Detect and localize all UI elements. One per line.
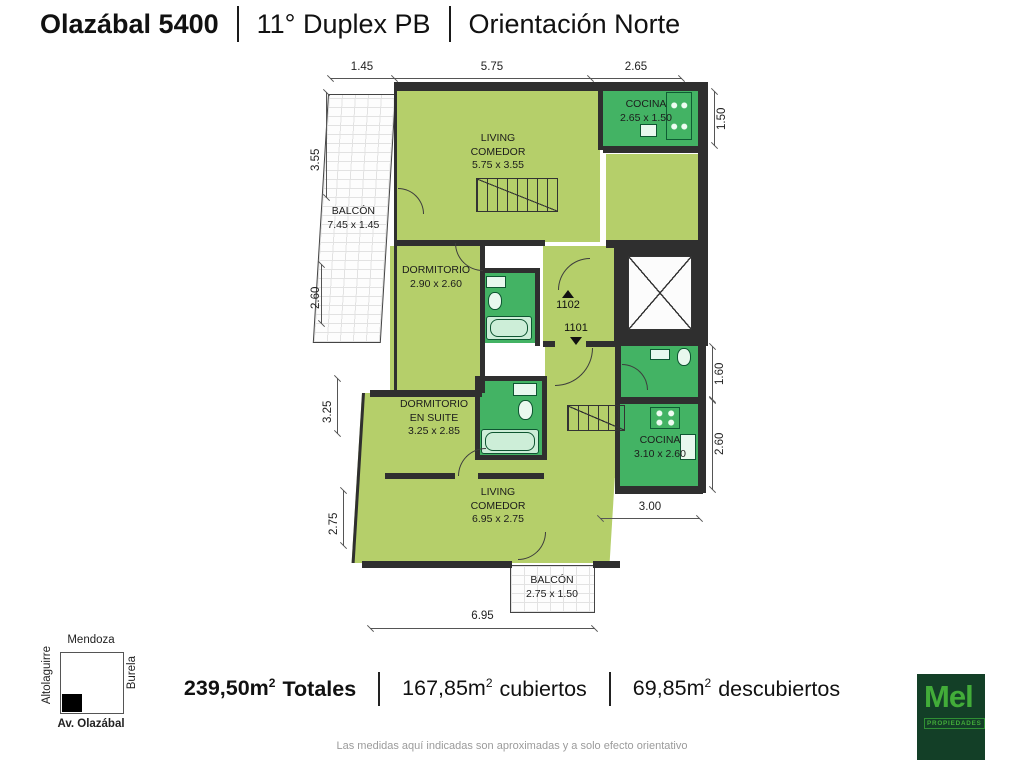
wall (593, 561, 620, 568)
page-title: Olazábal 5400 11° Duplex PB Orientación … (40, 6, 680, 42)
wall (478, 473, 544, 479)
room-name: BALCÓN (321, 205, 385, 219)
room-label-living-bottom: LIVING COMEDOR 6.95 x 2.75 (428, 486, 568, 527)
room-name: LIVING COMEDOR (428, 486, 568, 513)
stairs-upper (476, 178, 558, 212)
room-name: LIVING COMEDOR (428, 132, 568, 159)
wall (370, 390, 482, 397)
total-area-label: Totales (282, 677, 356, 701)
wall (535, 268, 540, 346)
wall (543, 341, 555, 347)
wall-window (394, 88, 397, 393)
dim-bottom: 6.95 (370, 610, 595, 622)
dim-left-1: 3.55 (310, 130, 322, 190)
room-size: 6.95 x 2.75 (428, 513, 568, 527)
dimension-line (370, 628, 595, 629)
total-area-value: 239,50m (184, 677, 269, 701)
title-separator-icon (237, 6, 239, 42)
dim-top-1: 1.45 (330, 61, 394, 73)
wall (698, 343, 706, 493)
elevator-icon (628, 256, 692, 330)
dimension-line (326, 92, 327, 198)
sink-icon (640, 124, 657, 137)
wall (385, 473, 455, 479)
map-street-south: Av. Olazábal (40, 718, 142, 730)
summary-separator-icon (609, 672, 611, 706)
dim-right-2: 1.60 (714, 350, 726, 398)
dimension-line (343, 490, 344, 546)
room-size: 3.25 x 2.85 (388, 425, 480, 439)
room-label-cocina-top: COCINA 2.65 x 1.50 (600, 98, 692, 125)
room-size: 5.75 x 3.55 (428, 159, 568, 173)
balcony-left-label: BALCÓN 7.45 x 1.45 (321, 205, 385, 232)
logo-brand: Mel (924, 681, 985, 712)
wall (475, 376, 547, 381)
stairs-lower (567, 405, 625, 431)
covered-area: 167,85m2cubiertos (402, 676, 587, 701)
dimension-line (600, 518, 700, 519)
room-label-cocina-bottom: COCINA 3.10 x 2.60 (620, 434, 700, 461)
total-area: 239,50m2Totales (184, 676, 356, 701)
map-street-west: Altolaguirre (41, 646, 53, 704)
map-street-north: Mendoza (60, 634, 122, 646)
map-street-east: Burela (126, 656, 138, 689)
dimension-line (712, 400, 713, 490)
room-palier-upper (606, 154, 698, 242)
uncovered-area-value: 69,85m (633, 677, 705, 701)
wall (606, 240, 708, 248)
title-unit: 11° Duplex PB (257, 9, 431, 40)
logo-tagline: PROPIEDADES (924, 718, 985, 729)
dim-top-3: 2.65 (590, 61, 682, 73)
room-name: COCINA (600, 98, 692, 112)
room-name: DORMITORIO EN SUITE (388, 398, 480, 425)
dimension-line (712, 346, 713, 400)
sink-icon (513, 383, 537, 396)
door-arrow-down-icon (570, 337, 582, 345)
unit-door-upper: 1102 (550, 299, 586, 311)
room-size: 2.75 x 1.50 (511, 588, 593, 602)
bathtub-icon (481, 429, 539, 454)
wall (615, 486, 703, 494)
room-size: 2.90 x 2.60 (392, 278, 480, 292)
balcony-bottom-label: BALCÓN 2.75 x 1.50 (511, 574, 593, 601)
sup: 2 (486, 676, 493, 690)
stove-icon (650, 407, 680, 429)
sup: 2 (269, 676, 276, 690)
dim-right-3: 2.60 (714, 418, 726, 470)
wall (480, 268, 540, 273)
toilet-icon (677, 348, 691, 366)
room-name: COCINA (620, 434, 700, 448)
dim-right-1: 1.50 (716, 96, 728, 142)
map-building-marker (62, 694, 82, 712)
wall (542, 376, 547, 460)
room-name: DORMITORIO (392, 264, 480, 278)
balcony-bottom: BALCÓN 2.75 x 1.50 (510, 565, 595, 613)
disclaimer-text: Las medidas aquí indicadas son aproximad… (0, 740, 1024, 752)
map-block-outline (60, 652, 124, 714)
toilet-icon (488, 292, 502, 310)
room-size: 2.65 x 1.50 (600, 112, 692, 126)
wall (362, 561, 512, 568)
wall (603, 146, 698, 153)
room-label-living-top: LIVING COMEDOR 5.75 x 3.55 (428, 132, 568, 173)
title-separator-icon (449, 6, 451, 42)
door-arrow-up-icon (562, 290, 574, 298)
covered-area-value: 167,85m (402, 677, 486, 701)
wall (614, 336, 708, 346)
dim-left-3: 3.25 (322, 384, 334, 440)
wall (615, 397, 703, 404)
dimension-line (714, 91, 715, 146)
title-orientation: Orientación Norte (469, 9, 681, 40)
room-name: BALCÓN (511, 574, 593, 588)
room-size: 3.10 x 2.60 (620, 448, 700, 462)
unit-door-lower: 1101 (558, 322, 594, 334)
dim-left-4: 2.75 (328, 496, 340, 552)
floor-plan: BALCÓN 7.45 x 1.45 BALCÓN 2.75 x 1.50 (310, 58, 734, 642)
sink-icon (650, 349, 670, 360)
wall (394, 82, 708, 91)
dim-bottom-right: 3.00 (600, 501, 700, 513)
toilet-icon (518, 400, 533, 420)
wall (615, 343, 621, 401)
page: Olazábal 5400 11° Duplex PB Orientación … (0, 0, 1024, 768)
covered-area-label: cubiertos (500, 677, 587, 701)
uncovered-area: 69,85m2descubiertos (633, 676, 840, 701)
location-map: Mendoza Altolaguirre Burela Av. Olazábal (40, 632, 158, 750)
room-size: 7.45 x 1.45 (321, 219, 385, 233)
bathtub-icon (486, 316, 532, 340)
summary-separator-icon (378, 672, 380, 706)
dimension-line (330, 78, 682, 79)
sink-icon (486, 276, 506, 288)
room-label-suite: DORMITORIO EN SUITE 3.25 x 2.85 (388, 398, 480, 439)
sup: 2 (705, 676, 712, 690)
room-label-dormitorio: DORMITORIO 2.90 x 2.60 (392, 264, 480, 291)
wall (700, 246, 708, 344)
dim-left-2: 2.60 (310, 270, 322, 326)
dim-top-2: 5.75 (394, 61, 590, 73)
uncovered-area-label: descubiertos (718, 677, 840, 701)
wall (698, 82, 708, 248)
title-address: Olazábal 5400 (40, 9, 219, 40)
dimension-line (337, 378, 338, 434)
